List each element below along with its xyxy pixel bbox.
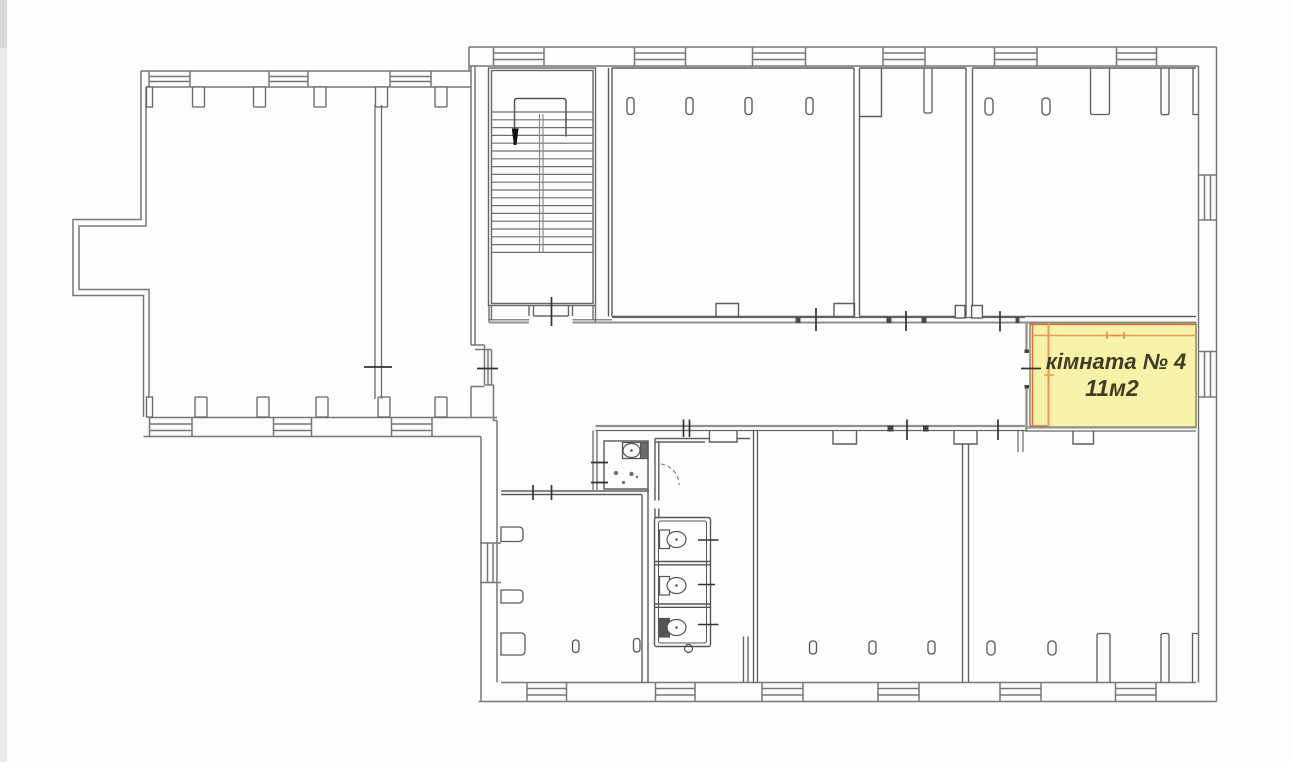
svg-text:кімната № 4: кімната № 4 (1046, 349, 1187, 374)
svg-text:11м2: 11м2 (1085, 375, 1139, 401)
